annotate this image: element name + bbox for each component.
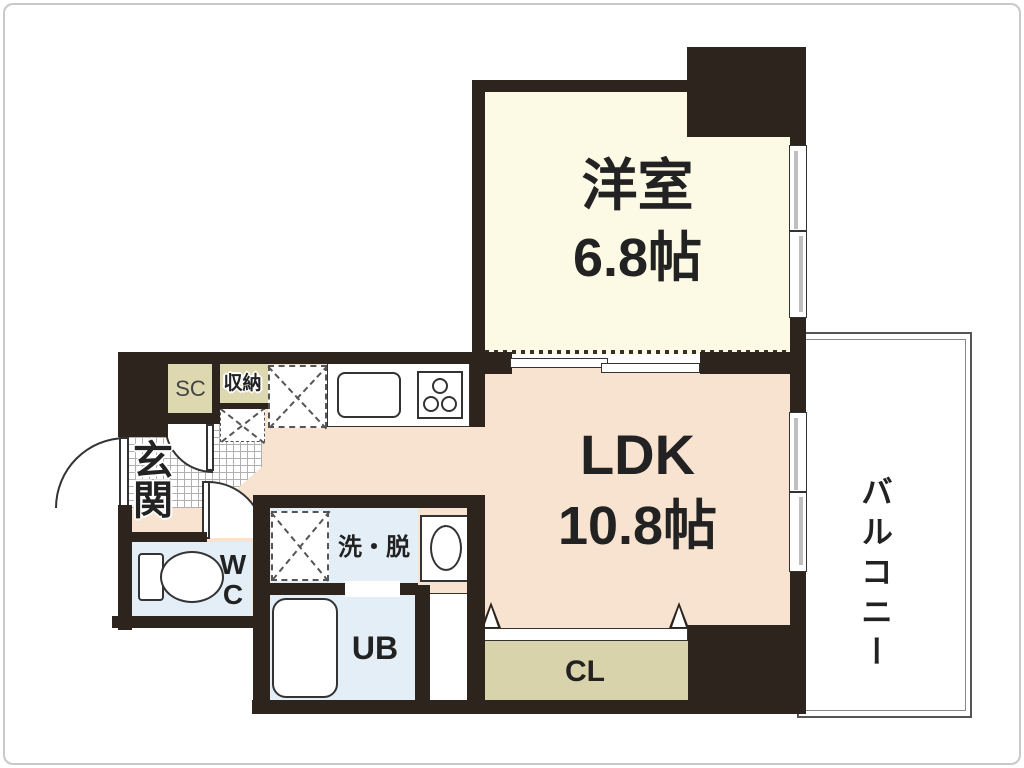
stove-burner-2	[423, 396, 439, 412]
toilet-label-c: C	[223, 579, 243, 610]
ldk-label: LDK	[485, 420, 790, 490]
window-western-room	[789, 145, 807, 318]
pipe-space	[427, 593, 472, 707]
bathtub	[272, 598, 338, 698]
closet-door-track	[482, 628, 688, 641]
wall-pillar	[687, 47, 806, 137]
wall	[168, 413, 217, 424]
wash-basin-bowl	[430, 525, 462, 571]
stove-burner-3	[441, 396, 457, 412]
western-room-label: 洋室	[485, 150, 790, 222]
ldk-size: 10.8帖	[485, 490, 790, 562]
entrance-label: 玄関	[134, 424, 178, 534]
toilet-door-leaf	[202, 481, 210, 539]
wall	[472, 352, 512, 374]
kitchen-sink	[337, 372, 401, 418]
wall	[253, 505, 270, 714]
western-room-label-group: 洋室 6.8帖	[485, 150, 790, 294]
wash-room-label: 洗・脱	[328, 530, 420, 566]
wall	[790, 570, 806, 630]
floor-plan: 洋室 6.8帖 LDK 10.8帖 バルコニー 玄関 SC 収納 洗・脱 W C…	[0, 0, 1024, 768]
unit-bath-label: UB	[336, 628, 414, 668]
wall	[700, 352, 806, 374]
storage-label: 収納	[217, 364, 268, 404]
sliding-partition-panel-2	[601, 363, 700, 373]
wall	[118, 352, 478, 364]
hall-door-leaf	[206, 424, 214, 471]
wall-corner-block	[688, 625, 806, 712]
wall	[118, 505, 132, 630]
window-ldk	[789, 412, 807, 572]
western-room-size: 6.8帖	[485, 222, 790, 294]
ldk-label-group: LDK 10.8帖	[485, 420, 790, 562]
wall	[472, 80, 485, 362]
bath-door-opening	[345, 581, 400, 597]
balcony-label: バルコニー	[850, 415, 898, 735]
wall	[112, 616, 268, 628]
toilet-label: W C	[216, 550, 250, 612]
wall	[415, 585, 430, 710]
sliding-partition-panel-1	[510, 358, 608, 368]
wall	[253, 495, 485, 508]
closet-label: CL	[482, 650, 688, 694]
shoe-closet-label: SC	[168, 364, 213, 413]
stove-burner-1	[432, 378, 448, 394]
toilet-bowl	[160, 551, 224, 603]
toilet-label-w: W	[220, 549, 246, 580]
